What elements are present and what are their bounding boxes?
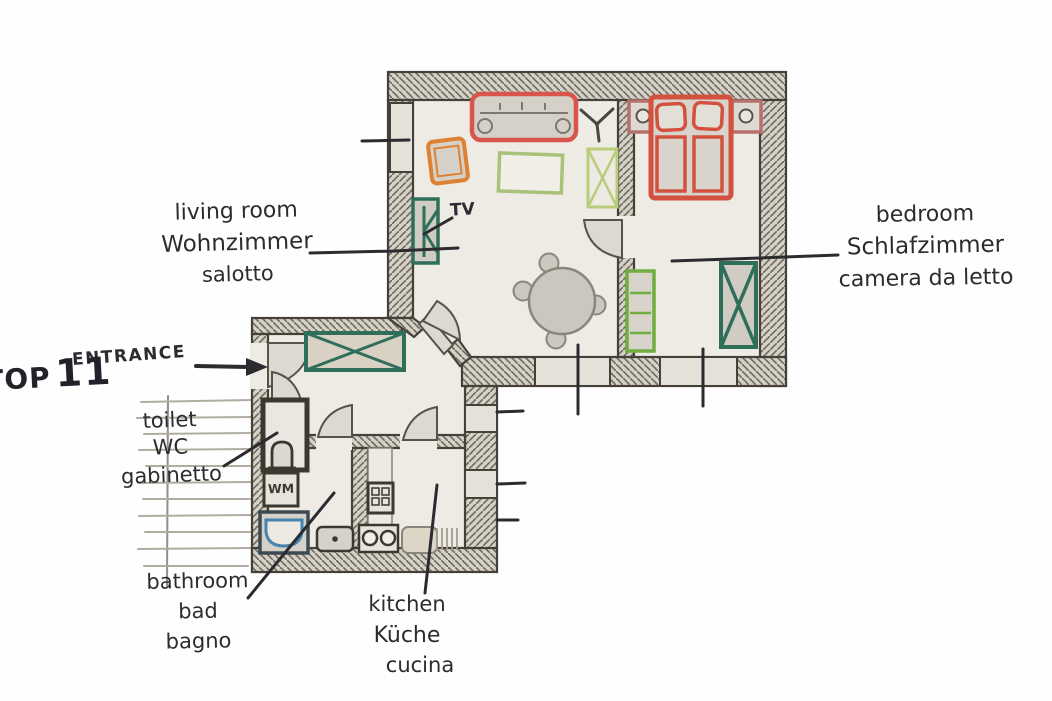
bedroom-label-it: camera da letto — [818, 261, 1034, 296]
bidet — [317, 527, 353, 551]
kitchen-label-de: Küche — [342, 620, 472, 651]
toilet-label-it: gabinetto — [104, 459, 240, 491]
toilet-room — [263, 400, 307, 470]
armchair — [428, 138, 469, 184]
bed-pillow — [656, 103, 685, 130]
bathroom-label-de: bad — [132, 596, 265, 628]
living-room-label-de: Wohnzimmer — [142, 225, 333, 263]
bedroom-wardrobe — [721, 263, 756, 347]
kitchen-label: kitchen Küche cucina — [342, 590, 472, 681]
bathroom-label-en: bathroom — [131, 566, 264, 598]
window-living-left-sill — [362, 140, 409, 141]
stove — [368, 483, 393, 513]
living-room-label: living room Wohnzimmer salotto — [141, 194, 333, 293]
bedroom-label: bedroom Schlafzimmer camera da letto — [817, 197, 1034, 296]
unit-name: TOP — [0, 361, 51, 397]
window-kitchen-upper-sill — [497, 411, 523, 412]
coffee-table — [498, 153, 562, 193]
window-kitchen-upper — [465, 405, 497, 432]
bed-mattress — [694, 137, 722, 191]
bedroom-label-de: Schlafzimmer — [818, 228, 1034, 264]
unit-number: 11 — [54, 349, 113, 396]
kitchen-sink — [359, 525, 398, 552]
kitchen-label-en: kitchen — [342, 590, 472, 620]
cabinet-living — [588, 149, 617, 207]
kitchen-label-it: cucina — [342, 651, 472, 681]
bed-mattress — [657, 137, 685, 191]
window-kitchen-lower-sill — [497, 483, 525, 484]
floor-plan-sketch: living room Wohnzimmer salotto bedroom S… — [0, 0, 1052, 701]
tv-label: TV — [449, 199, 475, 220]
tv-cabinet — [413, 199, 438, 263]
bedroom-shelf — [627, 271, 654, 351]
bathroom-label: bathroom bad bagno — [131, 566, 265, 658]
window-living-bottom — [535, 357, 610, 386]
bedroom-label-en: bedroom — [817, 197, 1033, 232]
bathroom-label-it: bagno — [132, 625, 265, 657]
sofa — [472, 94, 576, 140]
unit-label: TOP 11 — [0, 349, 113, 400]
bed-pillow — [693, 102, 722, 129]
living-room-label-it: salotto — [142, 257, 333, 292]
wall-right — [760, 100, 786, 386]
washing-machine-label: WM — [264, 481, 298, 497]
toilet-label: toilet WC gabinetto — [102, 405, 240, 492]
window-bedroom-bottom — [660, 357, 737, 386]
window-kitchen-lower — [465, 470, 497, 498]
nightstand-right — [732, 101, 761, 132]
window-living-left — [390, 103, 413, 172]
toilet-fixture — [272, 442, 292, 468]
living-room-label-en: living room — [141, 194, 332, 230]
double-bed — [651, 97, 731, 198]
hall-wardrobe — [306, 333, 404, 370]
